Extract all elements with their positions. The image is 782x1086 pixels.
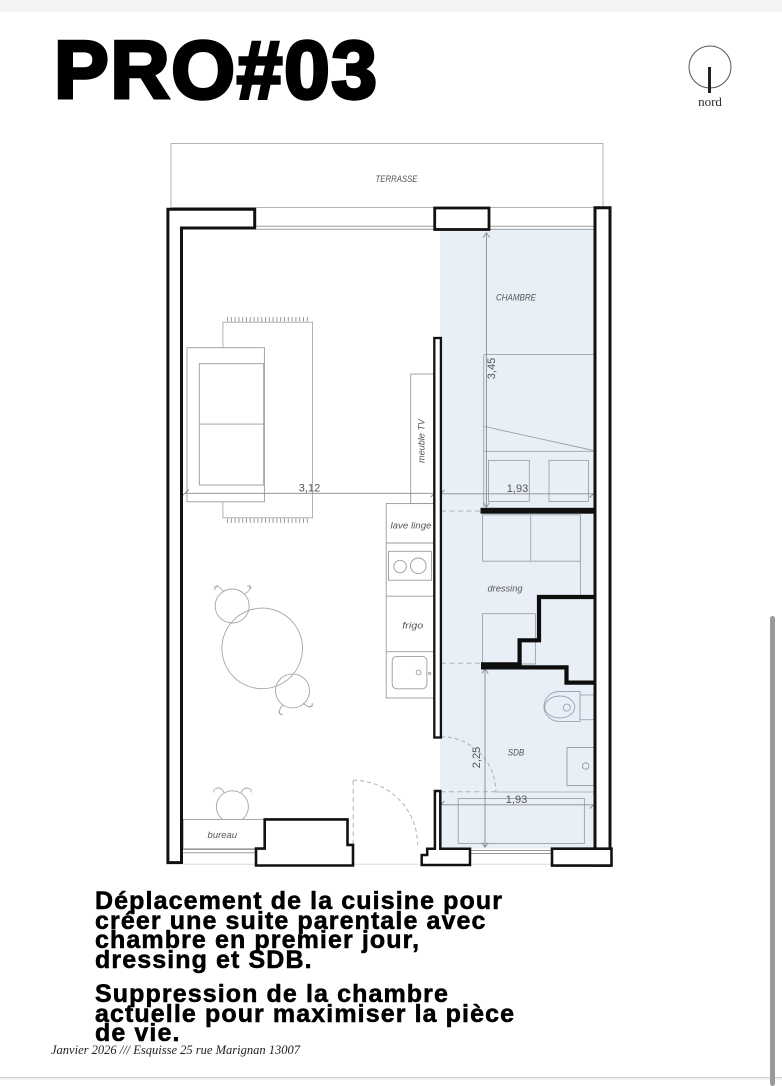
svg-text:TERRASSE: TERRASSE: [376, 174, 419, 185]
svg-text:bureau: bureau: [208, 830, 238, 841]
svg-text:1,93: 1,93: [506, 794, 527, 806]
svg-text:SDB: SDB: [508, 748, 525, 759]
svg-text:frigo: frigo: [402, 621, 423, 631]
svg-text:3,12: 3,12: [299, 483, 320, 495]
svg-text:2,25: 2,25: [471, 747, 483, 768]
svg-text:nord: nord: [698, 94, 722, 109]
svg-text:dressing: dressing: [488, 584, 524, 595]
svg-text:CHAMBRE: CHAMBRE: [496, 293, 537, 304]
svg-text:lave linge: lave linge: [391, 521, 432, 531]
svg-text:1,93: 1,93: [507, 483, 528, 495]
svg-text:3,45: 3,45: [486, 358, 498, 379]
svg-text:meuble TV: meuble TV: [417, 418, 427, 463]
